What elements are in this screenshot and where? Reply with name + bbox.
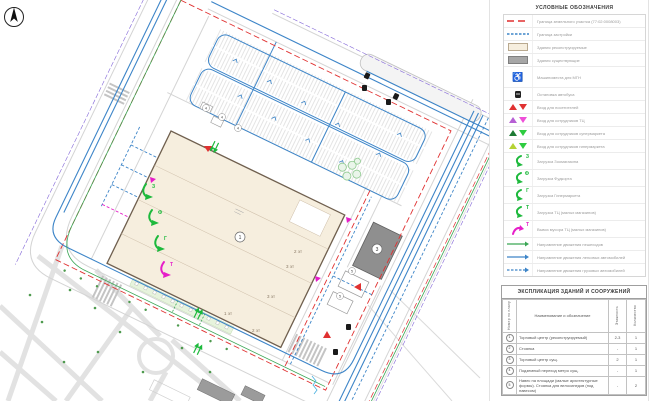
load-arrow-letter: З — [152, 184, 155, 190]
legend-row: Граница земельного участка (77:02:000800… — [504, 15, 645, 28]
legend-row: Т Загрузка ТЦ (малых магазинов) — [504, 204, 645, 221]
plaza-buildings — [149, 379, 265, 401]
staff-entrance-hypermarket-icon — [504, 140, 533, 152]
stream-line — [312, 376, 317, 394]
legend-row: Т Вывоз мусора ТЦ (малых магазинов) — [504, 221, 645, 238]
loading-arrow-icon: З — [504, 153, 533, 169]
explication-table: Номер по плану Наименование и обозначени… — [502, 299, 646, 395]
waste-arrow-letter: Т — [170, 262, 173, 268]
north-arrow-icon — [5, 8, 24, 27]
svg-text:3: 3 — [376, 247, 379, 253]
legend-row: Здания существующие — [504, 54, 645, 67]
panel-divider — [489, 0, 490, 401]
legend-row: Здания реконструируемые — [504, 41, 645, 54]
col-header-name: Наименование и обозначение — [517, 300, 609, 333]
svg-text:3 эт: 3 эт — [267, 294, 275, 299]
legend-row: Вход для сотрудников ТЦ — [504, 114, 645, 127]
legend-row: Вход для сотрудников гипермаркета — [504, 140, 645, 153]
staff-entrance-tc-icon — [504, 114, 533, 126]
svg-text:2 эт: 2 эт — [252, 328, 260, 333]
table-row: 5 Навес на площади (малые архитектурные … — [503, 376, 646, 394]
legend-row: Г Загрузка Гипермаркета — [504, 187, 645, 204]
red-dashed-line-icon — [504, 15, 533, 27]
col-header-count: Количество — [634, 305, 638, 326]
table-row: 2 Стоянка - 1 — [503, 343, 646, 354]
legend-title: УСЛОВНЫЕ ОБОЗНАЧЕНИЯ — [503, 5, 646, 11]
gray-swatch-icon — [504, 54, 533, 66]
site-plan-svg: З Ф Г Т 1 3 4 4 4 — [0, 0, 490, 401]
explication-title: ЭКСПЛИКАЦИЯ ЗДАНИЙ И СООРУЖЕНИЙ — [502, 286, 646, 299]
staff-entrance-supermarket-icon — [504, 127, 533, 139]
legend-row: Вход для посетителей — [504, 101, 645, 114]
drawing-sheet: З Ф Г Т 1 3 4 4 4 — [0, 0, 650, 401]
load-arrow-letter: Г — [164, 236, 167, 242]
explication-header-row: Номер по плану Наименование и обозначени… — [503, 300, 646, 333]
table-row: 1 Торговый центр (реконструируемый) 2-3 … — [503, 332, 646, 343]
table-row: 4 Подземный переход метро сущ. - 1 — [503, 365, 646, 376]
legend-row: ♿ Машиноместа для МГН — [504, 67, 645, 88]
svg-text:1 эт: 1 эт — [224, 311, 232, 316]
building-number-1: 1 — [235, 232, 245, 242]
loading-arrow-icon: Т — [504, 204, 533, 220]
legend-row: Граница застройки — [504, 28, 645, 41]
legend-row: Направление движения грузовых автомобиле… — [504, 264, 645, 276]
sheet-edge — [648, 0, 649, 401]
blue-dashed-line-icon — [504, 28, 533, 40]
wheelchair-icon: ♿ — [504, 67, 533, 87]
legend-panel: УСЛОВНЫЕ ОБОЗНАЧЕНИЯ Граница земельного … — [503, 5, 646, 277]
car-route-icon — [504, 251, 533, 263]
load-arrow-letter: Ф — [158, 210, 163, 216]
legend-row: Направление движения легковых автомобиле… — [504, 251, 645, 264]
legend-table: Граница земельного участка (77:02:000800… — [503, 14, 646, 277]
loading-arrow-icon: Ф — [504, 170, 533, 186]
legend-row: Направление движения пешеходов — [504, 238, 645, 251]
pedestrian-route-icon — [504, 238, 533, 250]
col-header-floors: Этажность — [616, 306, 620, 325]
legend-row: Вход для сотрудников супермаркета — [504, 127, 645, 140]
legend-row: Остановка автобуса — [504, 88, 645, 101]
rotated-site — [0, 0, 490, 401]
beige-swatch-icon — [504, 41, 533, 53]
legend-row: З Загрузка Зоомагазина — [504, 153, 645, 170]
building-number-3: 3 — [372, 244, 382, 254]
explication-panel: ЭКСПЛИКАЦИЯ ЗДАНИЙ И СООРУЖЕНИЙ Номер по… — [501, 285, 647, 396]
waste-arrow-icon: Т — [504, 221, 533, 237]
svg-text:2 эт: 2 эт — [294, 249, 302, 254]
svg-text:1: 1 — [239, 235, 242, 241]
loading-arrow-icon: Г — [504, 187, 533, 203]
table-row: 3 Торговый центр сущ. 2 1 — [503, 354, 646, 365]
svg-text:3 эт: 3 эт — [286, 264, 294, 269]
bus-stop-icon — [504, 88, 533, 100]
col-header-num: Номер по плану — [508, 301, 512, 330]
truck-route-icon — [504, 264, 533, 276]
visitor-entrance-icon — [504, 101, 533, 113]
legend-row: Ф Загрузка Фудкорта — [504, 170, 645, 187]
